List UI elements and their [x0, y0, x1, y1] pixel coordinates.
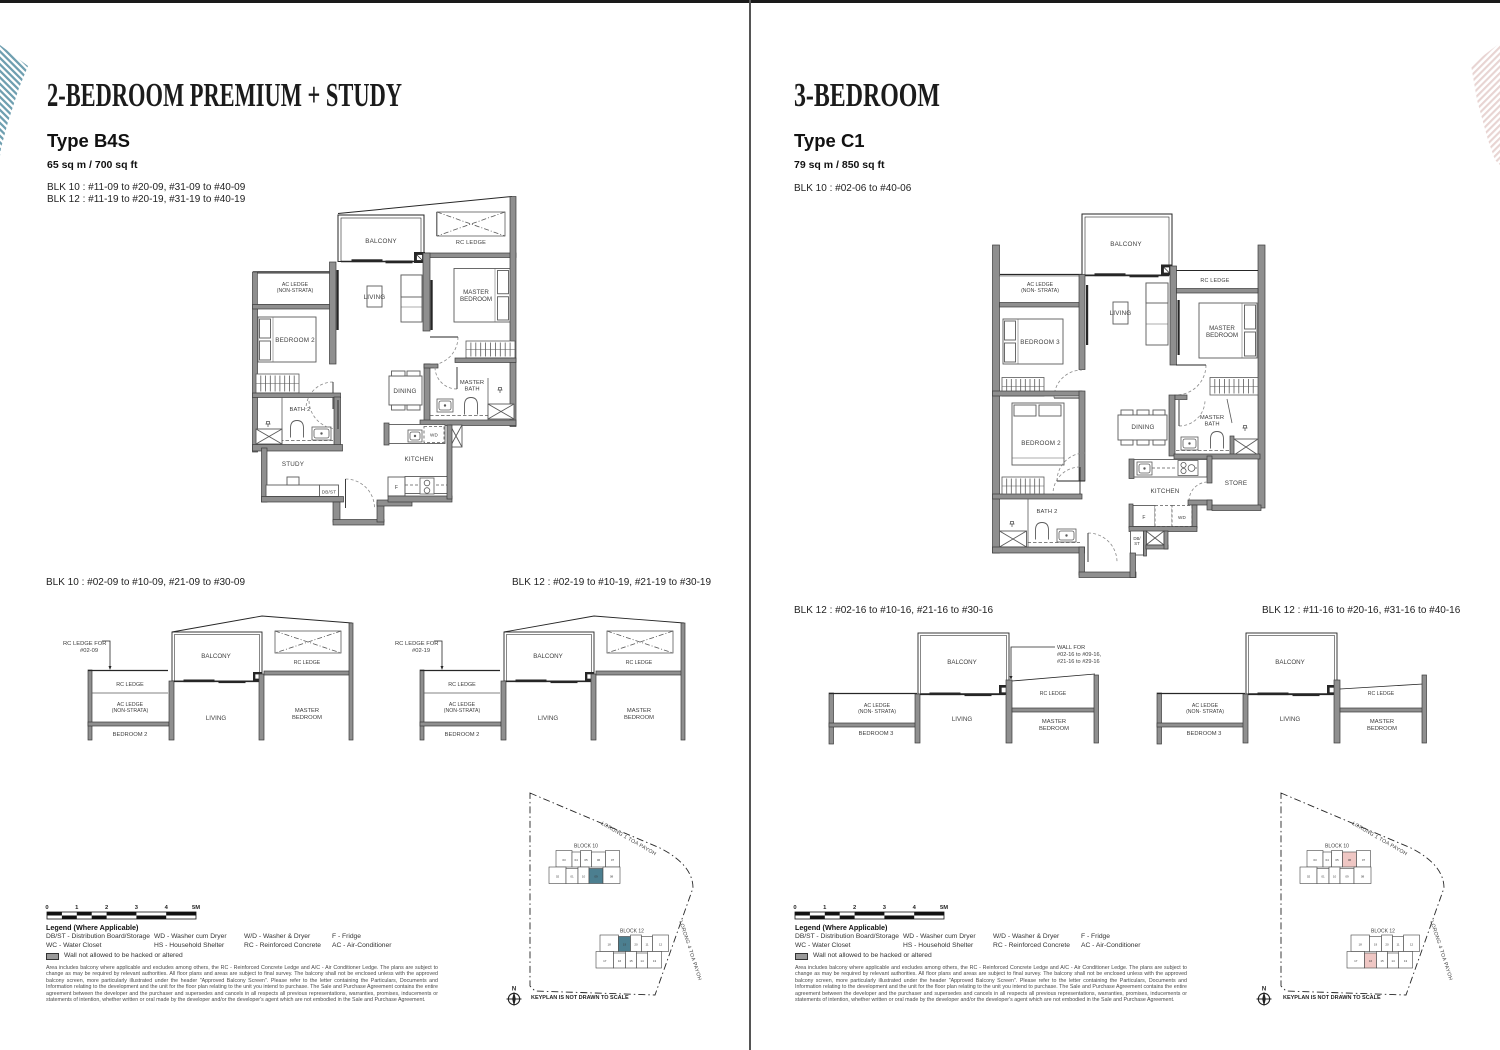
svg-text:03: 03: [562, 858, 566, 862]
svg-text:LORONG 4 TOA PAYOH: LORONG 4 TOA PAYOH: [1428, 920, 1453, 981]
svg-text:STUDY: STUDY: [282, 461, 305, 468]
svg-text:2: 2: [105, 905, 108, 911]
svg-text:(NON-STRATA): (NON-STRATA): [112, 708, 149, 714]
svg-text:12: 12: [1410, 943, 1414, 947]
svg-text:4: 4: [913, 905, 917, 911]
svg-text:BEDROOM 2: BEDROOM 2: [275, 337, 315, 344]
svg-text:13: 13: [653, 959, 657, 963]
svg-text:BALCONY: BALCONY: [365, 238, 397, 245]
svg-text:18: 18: [1359, 943, 1363, 947]
svg-text:02: 02: [556, 875, 560, 879]
svg-text:LORONG 4 TOA PAYOH: LORONG 4 TOA PAYOH: [677, 920, 702, 981]
svg-text:10: 10: [1333, 875, 1337, 879]
svg-text:01: 01: [1321, 875, 1325, 879]
svg-text:MASTERBATH: MASTERBATH: [460, 380, 484, 393]
svg-text:BATH 2: BATH 2: [289, 407, 310, 413]
svg-text:BLOCK 10: BLOCK 10: [574, 844, 598, 850]
svg-text:BEDROOM 3: BEDROOM 3: [1020, 339, 1060, 346]
svg-text:08: 08: [610, 875, 614, 879]
svg-text:BALCONY: BALCONY: [947, 659, 977, 666]
svg-text:BEDROOM 3: BEDROOM 3: [1187, 731, 1222, 737]
svg-text:#02-19: #02-19: [412, 648, 430, 654]
svg-text:15: 15: [629, 959, 633, 963]
svg-text:RC LEDGE FOR: RC LEDGE FOR: [395, 641, 438, 647]
svg-text:5M: 5M: [940, 905, 948, 911]
svg-text:KITCHEN: KITCHEN: [404, 456, 433, 463]
svg-text:#02-16 to #09-16,: #02-16 to #09-16,: [1057, 652, 1102, 658]
svg-text:BEDROOM 3: BEDROOM 3: [859, 731, 894, 737]
svg-text:RC LEDGE: RC LEDGE: [448, 682, 476, 688]
svg-text:RC LEDGE: RC LEDGE: [1368, 691, 1395, 697]
svg-text:09: 09: [594, 875, 598, 879]
svg-text:02: 02: [1307, 875, 1311, 879]
svg-text:3: 3: [135, 905, 139, 911]
svg-text:10: 10: [582, 875, 586, 879]
svg-text:F: F: [1142, 515, 1145, 521]
svg-text:MASTER: MASTER: [295, 708, 319, 714]
svg-text:BLOCK 12: BLOCK 12: [620, 929, 644, 935]
svg-text:BEDROOM: BEDROOM: [624, 715, 654, 721]
svg-text:DINING: DINING: [393, 388, 416, 395]
svg-text:WD: WD: [430, 433, 439, 438]
svg-text:BALCONY: BALCONY: [533, 653, 563, 660]
svg-text:BALCONY: BALCONY: [1110, 241, 1142, 248]
svg-text:20: 20: [1385, 943, 1389, 947]
svg-text:BALCONY: BALCONY: [201, 653, 231, 660]
svg-text:F: F: [395, 485, 398, 491]
svg-text:BATH 2: BATH 2: [1036, 509, 1057, 515]
svg-text:MASTERBEDROOM: MASTERBEDROOM: [460, 289, 492, 303]
svg-text:20: 20: [634, 943, 638, 947]
svg-text:LIVING: LIVING: [538, 715, 558, 722]
svg-text:BEDROOM 2: BEDROOM 2: [1021, 440, 1061, 447]
svg-text:#02-09: #02-09: [80, 648, 98, 654]
svg-text:5M: 5M: [192, 905, 200, 911]
svg-text:1: 1: [75, 905, 79, 911]
svg-text:1: 1: [823, 905, 827, 911]
svg-text:03: 03: [1313, 858, 1317, 862]
svg-text:17: 17: [603, 959, 607, 963]
svg-text:BLOCK 10: BLOCK 10: [1325, 844, 1349, 850]
svg-text:DINING: DINING: [1131, 424, 1154, 431]
svg-text:(NON- STRATA): (NON- STRATA): [1186, 709, 1224, 715]
svg-text:BEDROOM: BEDROOM: [1039, 726, 1069, 732]
svg-text:RC LEDGE FOR: RC LEDGE FOR: [63, 641, 106, 647]
svg-text:07: 07: [1362, 858, 1366, 862]
svg-text:MASTERBATH: MASTERBATH: [1200, 415, 1224, 428]
svg-text:WD: WD: [1178, 515, 1187, 520]
svg-text:DB/ST: DB/ST: [322, 490, 337, 495]
svg-text:11: 11: [645, 943, 648, 947]
svg-text:14: 14: [640, 959, 644, 963]
svg-text:MASTER: MASTER: [1042, 719, 1066, 725]
svg-text:RC LEDGE: RC LEDGE: [626, 660, 653, 666]
svg-text:06: 06: [597, 858, 601, 862]
svg-text:KITCHEN: KITCHEN: [1150, 488, 1179, 495]
svg-text:12: 12: [659, 943, 663, 947]
svg-text:BEDROOM 2: BEDROOM 2: [445, 732, 480, 738]
svg-text:LIVING: LIVING: [1280, 716, 1300, 723]
svg-text:16: 16: [618, 959, 622, 963]
svg-text:AC LEDGE(NON-STRATA): AC LEDGE(NON-STRATA): [277, 282, 314, 294]
svg-text:WALL FOR: WALL FOR: [1057, 645, 1085, 651]
svg-text:STORE: STORE: [1225, 480, 1248, 487]
svg-text:15: 15: [1380, 959, 1384, 963]
svg-text:RC LEDGE: RC LEDGE: [1200, 278, 1229, 284]
svg-text:LIVING: LIVING: [206, 715, 226, 722]
svg-text:BEDROOM 2: BEDROOM 2: [113, 732, 148, 738]
svg-text:RC LEDGE: RC LEDGE: [1040, 691, 1067, 697]
svg-text:06: 06: [1348, 858, 1352, 862]
svg-text:LIVING: LIVING: [364, 294, 386, 301]
svg-text:11: 11: [1396, 943, 1399, 947]
svg-text:05: 05: [584, 858, 588, 862]
svg-text:16: 16: [1369, 959, 1373, 963]
svg-text:13: 13: [1404, 959, 1408, 963]
svg-text:MASTER: MASTER: [1370, 719, 1394, 725]
svg-text:LIVING: LIVING: [1110, 310, 1132, 317]
svg-text:RC LEDGE: RC LEDGE: [456, 240, 486, 246]
svg-text:#21-16 to #29-16: #21-16 to #29-16: [1057, 659, 1100, 665]
svg-text:BALCONY: BALCONY: [1275, 659, 1305, 666]
svg-text:09: 09: [1345, 875, 1349, 879]
svg-text:19: 19: [623, 943, 627, 947]
svg-text:14: 14: [1391, 959, 1395, 963]
svg-text:08: 08: [1361, 875, 1365, 879]
svg-text:MASTERBEDROOM: MASTERBEDROOM: [1206, 325, 1238, 339]
svg-text:0: 0: [793, 905, 796, 911]
svg-text:2: 2: [853, 905, 856, 911]
svg-text:07: 07: [611, 858, 615, 862]
svg-text:BLOCK 12: BLOCK 12: [1371, 929, 1395, 935]
svg-text:MASTER: MASTER: [627, 708, 651, 714]
svg-text:18: 18: [608, 943, 612, 947]
svg-text:19: 19: [1374, 943, 1378, 947]
svg-text:(NON- STRATA): (NON- STRATA): [858, 709, 896, 715]
svg-text:3: 3: [883, 905, 887, 911]
svg-text:17: 17: [1354, 959, 1358, 963]
svg-text:BEDROOM: BEDROOM: [292, 715, 322, 721]
svg-text:BEDROOM: BEDROOM: [1367, 726, 1397, 732]
svg-text:0: 0: [45, 905, 48, 911]
svg-text:4: 4: [165, 905, 169, 911]
svg-text:04: 04: [575, 858, 579, 862]
svg-text:01: 01: [570, 875, 574, 879]
svg-text:LIVING: LIVING: [952, 716, 972, 723]
svg-text:(NON-STRATA): (NON-STRATA): [444, 708, 481, 714]
svg-text:RC LEDGE: RC LEDGE: [116, 682, 144, 688]
svg-text:RC LEDGE: RC LEDGE: [294, 660, 321, 666]
svg-text:04: 04: [1326, 858, 1330, 862]
svg-text:05: 05: [1335, 858, 1339, 862]
